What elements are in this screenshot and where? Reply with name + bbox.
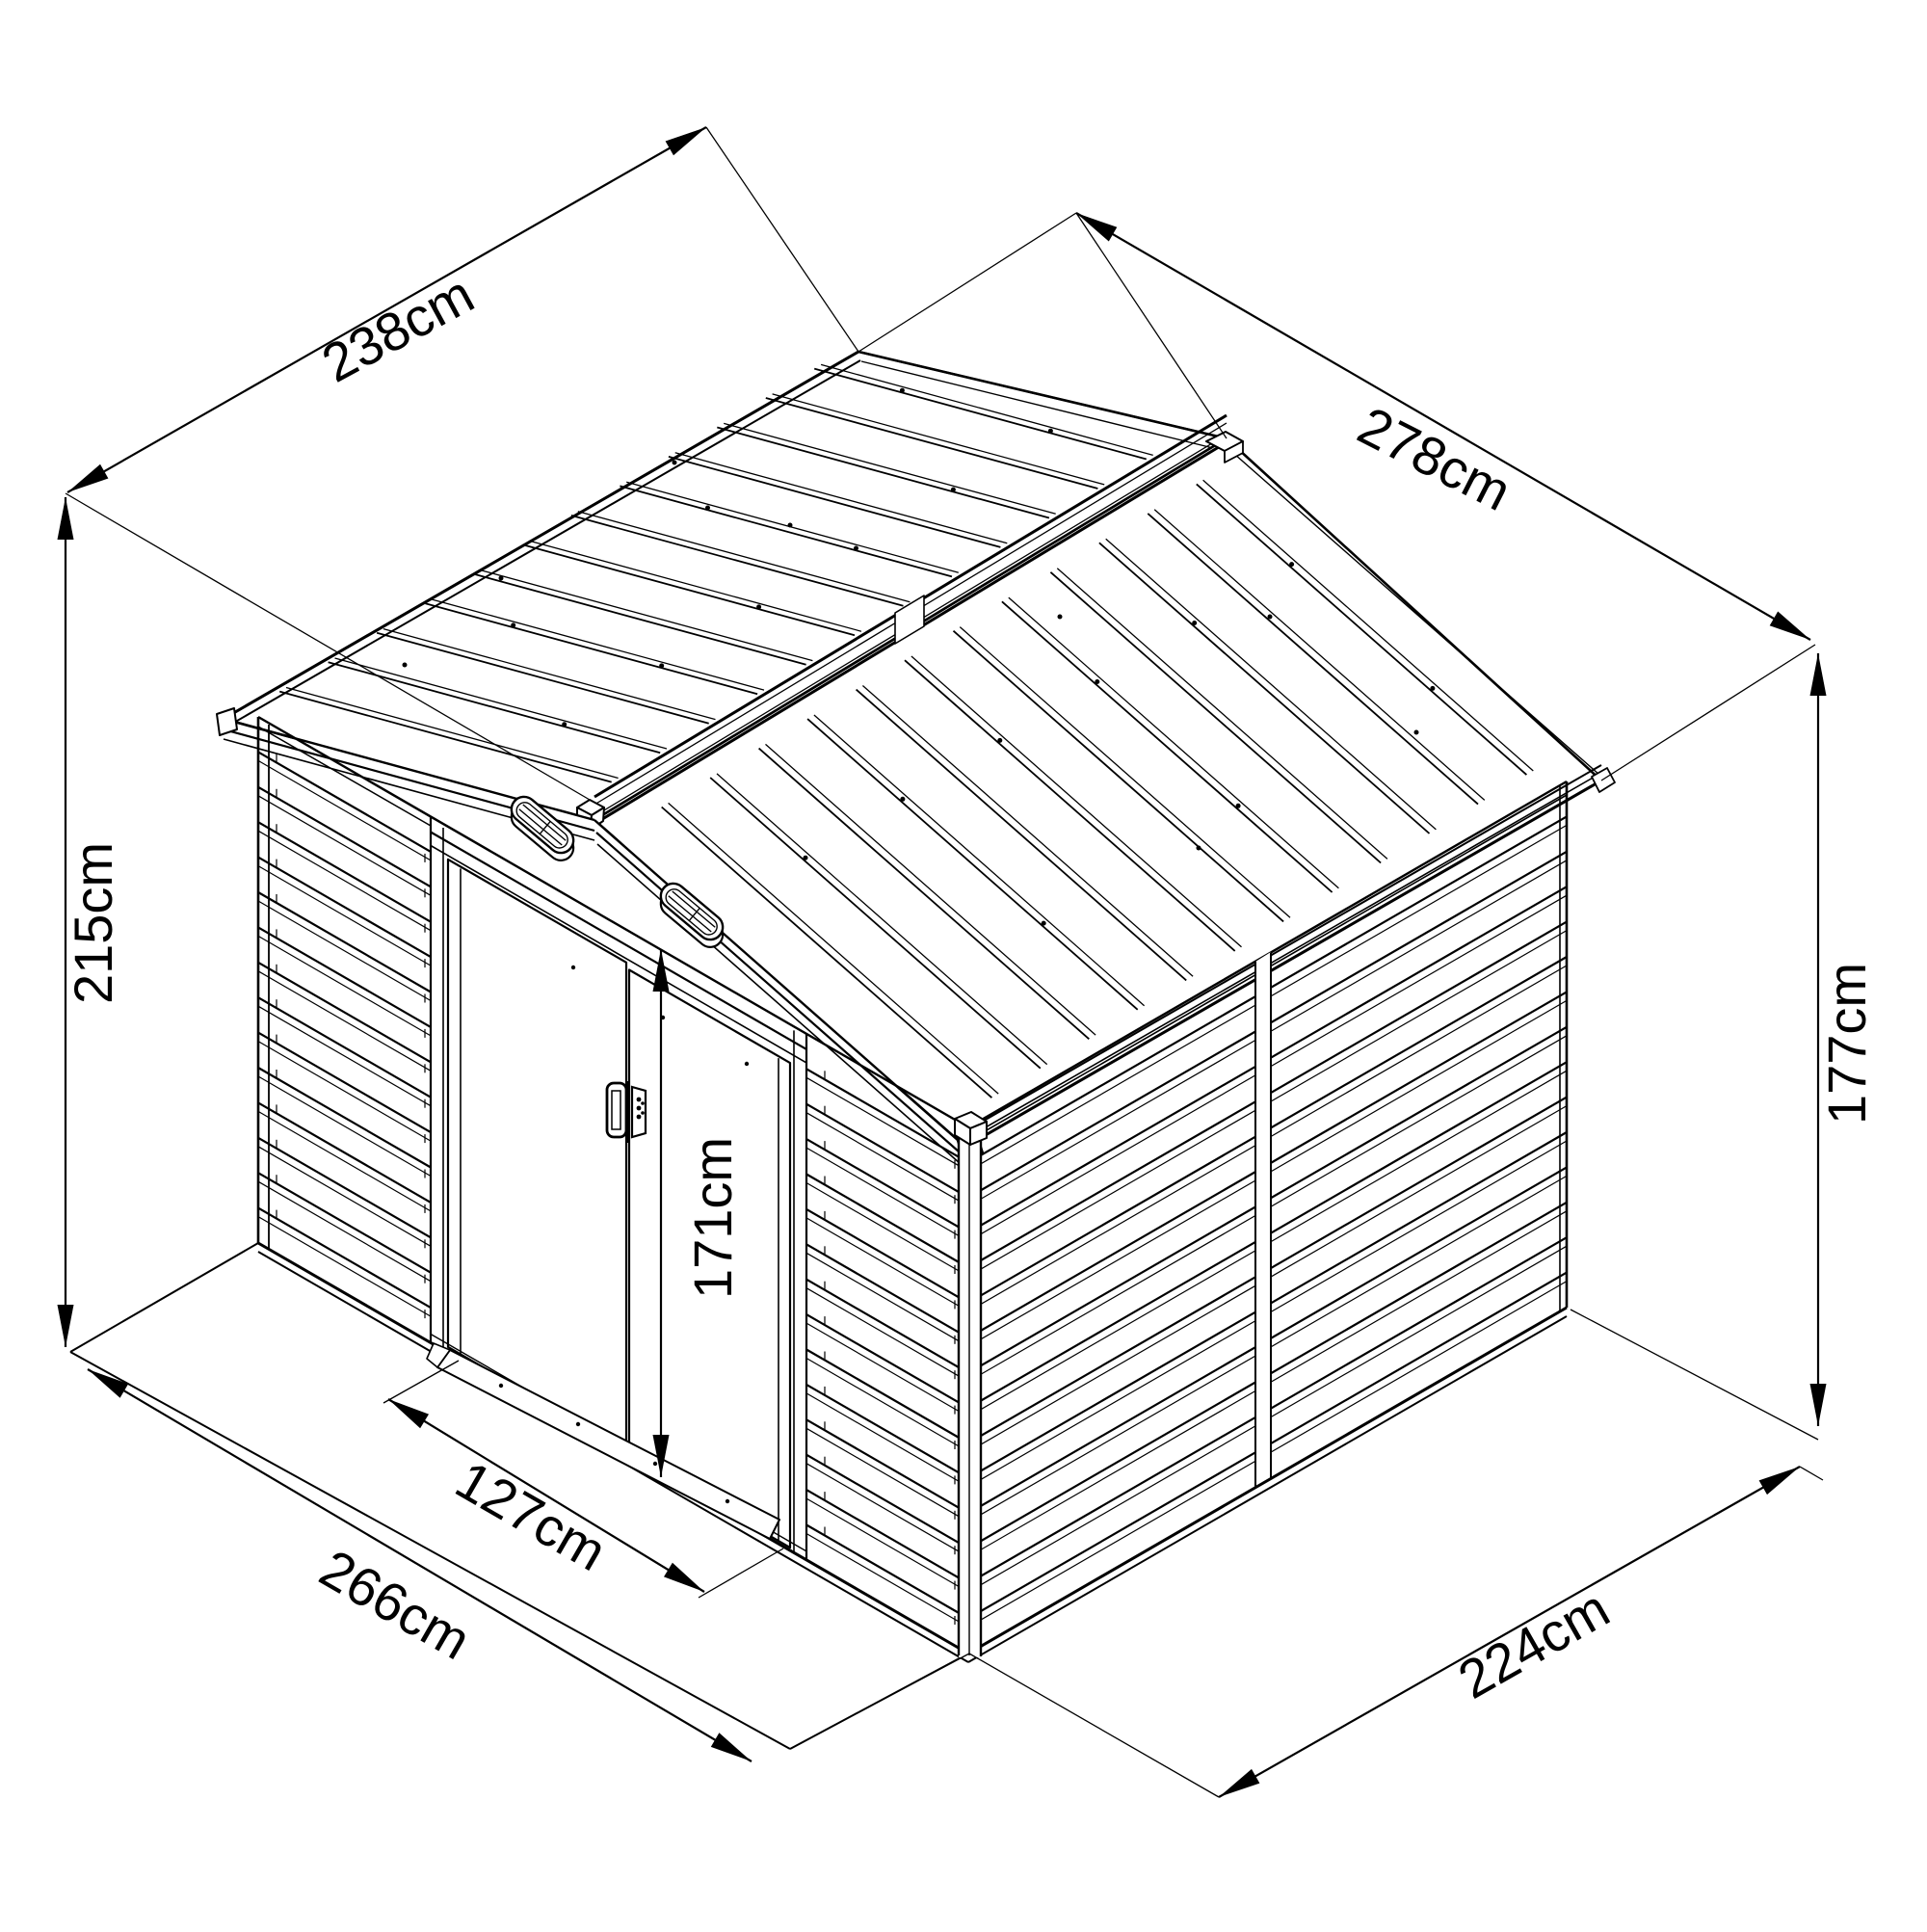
svg-text:177cm: 177cm xyxy=(1816,963,1877,1125)
svg-text:171cm: 171cm xyxy=(682,1137,743,1299)
svg-text:215cm: 215cm xyxy=(63,842,123,1004)
